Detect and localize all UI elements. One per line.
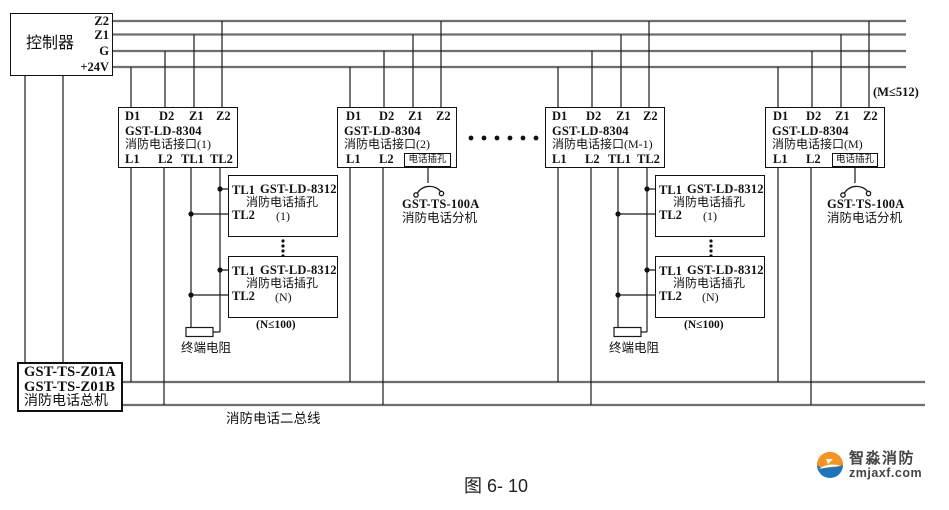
terminal-l1: L1 — [346, 152, 361, 166]
wiring-layer — [0, 0, 949, 510]
logo-site: zmjaxf.com — [849, 467, 922, 480]
controller-box: 控制器 Z2 Z1 G +24V — [10, 13, 113, 76]
master-unit-box: GST-TS-Z01A GST-TS-Z01B 消防电话总机 — [17, 362, 123, 412]
jack-index: (1) — [276, 210, 290, 224]
jack-name: 消防电话插孔 — [673, 277, 745, 291]
terminal-tl1: TL1 — [608, 152, 631, 166]
terminal-z1: Z1 — [408, 109, 423, 123]
jack-index: (1) — [703, 210, 717, 224]
controller-terminal-z2: Z2 — [94, 14, 109, 28]
jack-index: (N) — [275, 291, 292, 305]
terminal-d1: D1 — [773, 109, 788, 123]
terminal-tl2: TL2 — [659, 208, 682, 222]
terminal-tl2: TL2 — [210, 152, 233, 166]
interface-name: 消防电话接口(1) — [125, 138, 211, 152]
logo: 智淼消防 zmjaxf.com — [816, 451, 922, 480]
terminal-resistor-symbols — [186, 328, 641, 337]
telephone-bus-lines — [123, 382, 925, 405]
terminal-d1: D1 — [346, 109, 361, 123]
terminal-d2: D2 — [586, 109, 601, 123]
terminal-l1: L1 — [773, 152, 788, 166]
extension-name-2: 消防电话分机 — [827, 211, 902, 225]
terminal-tl2: TL2 — [637, 152, 660, 166]
handset-icon — [414, 186, 871, 197]
extension-name-1: 消防电话分机 — [402, 211, 477, 225]
interface-box-2: D1 D2 Z1 Z2 GST-LD-8304 消防电话接口(2) L1 L2 … — [337, 107, 457, 168]
terminal-l2: L2 — [585, 152, 600, 166]
terminal-tl2: TL2 — [232, 208, 255, 222]
controller-terminal-z1: Z1 — [94, 28, 109, 42]
phone-jack-box-m1-n: TL1 GST-LD-8312 消防电话插孔 TL2 (N) — [655, 256, 765, 318]
telephone-bus-label: 消防电话二总线 — [226, 411, 321, 427]
ellipsis-horizontal — [469, 136, 539, 141]
terminal-l2: L2 — [806, 152, 821, 166]
terminal-d2: D2 — [379, 109, 394, 123]
terminal-tl1: TL1 — [181, 152, 204, 166]
terminal-tl2: TL2 — [659, 289, 682, 303]
controller-label: 控制器 — [26, 35, 74, 53]
interface-box-1: D1 D2 Z1 Z2 GST-LD-8304 消防电话接口(1) L1 L2 … — [118, 107, 238, 168]
terminal-resistor-label-1: 终端电阻 — [181, 341, 231, 355]
controller-terminal-24v: +24V — [80, 60, 109, 74]
interface-name: 消防电话接口(2) — [344, 138, 430, 152]
jack-name: 消防电话插孔 — [673, 196, 745, 210]
terminal-tl2: TL2 — [232, 289, 255, 303]
wiring-diagram: 控制器 Z2 Z1 G +24V (M≤512) D1 D2 Z1 Z2 GST… — [0, 0, 949, 510]
jack-name: 消防电话插孔 — [246, 277, 318, 291]
controller-terminal-g: G — [99, 44, 109, 58]
terminal-d1: D1 — [125, 109, 140, 123]
interface-box-m: D1 D2 Z1 Z2 GST-LD-8304 消防电话接口(M) L1 L2 … — [765, 107, 885, 168]
terminal-z2: Z2 — [863, 109, 878, 123]
figure-caption: 图 6- 10 — [436, 476, 556, 497]
logo-name: 智淼消防 — [849, 451, 922, 467]
terminal-d2: D2 — [159, 109, 174, 123]
jack-limit-note-1: (N≤100) — [256, 319, 296, 332]
interface-box-m-1: D1 D2 Z1 Z2 GST-LD-8304 消防电话接口(M-1) L1 L… — [545, 107, 665, 168]
terminal-l2: L2 — [158, 152, 173, 166]
terminal-l1: L1 — [552, 152, 567, 166]
terminal-l1: L1 — [125, 152, 140, 166]
interface-name: 消防电话接口(M) — [772, 138, 863, 152]
jack-name: 消防电话插孔 — [246, 196, 318, 210]
terminal-l2: L2 — [379, 152, 394, 166]
extension-model-1: GST-TS-100A — [402, 197, 479, 211]
phone-jack-port: 电话插孔 — [404, 153, 451, 167]
terminal-z1: Z1 — [189, 109, 204, 123]
terminal-z2: Z2 — [436, 109, 451, 123]
phone-jack-box-m1-1: TL1 GST-LD-8312 消防电话插孔 TL2 (1) — [655, 175, 765, 237]
logo-icon — [816, 451, 844, 479]
terminal-resistor-label-2: 终端电阻 — [609, 341, 659, 355]
jack-limit-note-2: (N≤100) — [684, 319, 724, 332]
ellipsis-vertical — [281, 239, 712, 257]
phone-jack-box-1-n: TL1 GST-LD-8312 消防电话插孔 TL2 (N) — [228, 256, 338, 318]
terminal-d2: D2 — [806, 109, 821, 123]
jack-index: (N) — [702, 291, 719, 305]
master-name: 消防电话总机 — [24, 394, 108, 410]
interface-name: 消防电话接口(M-1) — [552, 138, 653, 152]
terminal-z1: Z1 — [616, 109, 631, 123]
phone-jack-box-1-1: TL1 GST-LD-8312 消防电话插孔 TL2 (1) — [228, 175, 338, 237]
terminal-d1: D1 — [552, 109, 567, 123]
terminal-z2: Z2 — [216, 109, 231, 123]
terminal-z1: Z1 — [835, 109, 850, 123]
phone-jack-port: 电话插孔 — [832, 153, 878, 167]
terminal-z2: Z2 — [643, 109, 658, 123]
controller-bus-lines — [112, 21, 906, 67]
max-interfaces-note: (M≤512) — [873, 85, 919, 99]
extension-model-2: GST-TS-100A — [827, 197, 904, 211]
